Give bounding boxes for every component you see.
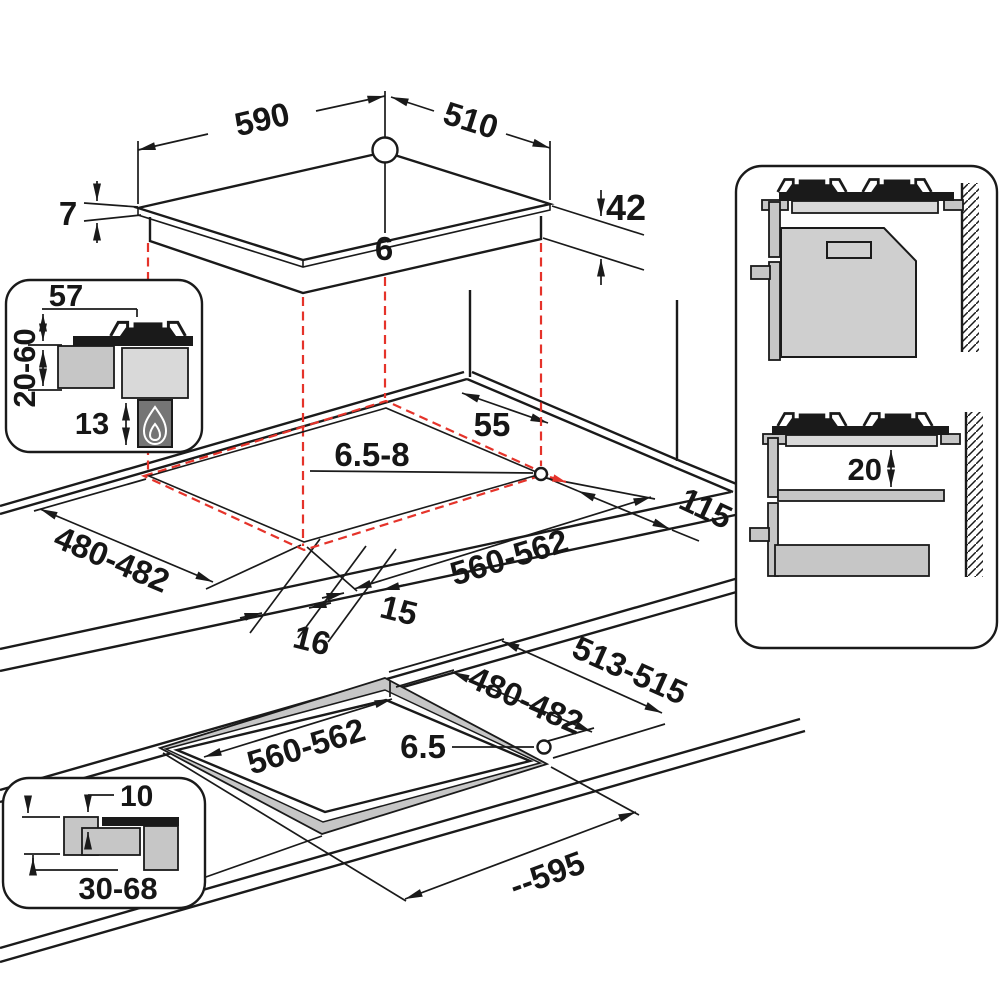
worktop-section <box>58 346 114 388</box>
dim-55-label: 55 <box>474 406 511 443</box>
dim-cutout-depth-label: 480-482 <box>49 518 175 599</box>
gas-inlet-tab <box>750 528 769 541</box>
wall-hatch-top <box>963 183 979 352</box>
dim-30-68-label: 30-68 <box>78 871 157 906</box>
dim-overall-width-label: --595 <box>504 843 589 904</box>
dim-15-label: 15 <box>377 588 422 633</box>
dim-20-60-label: 20-60 <box>7 328 42 407</box>
dim-flush-hole-label: 6.5 <box>400 728 446 765</box>
diagram-page: 55 6.5-8 115 480-482 560-562 15 16 <box>0 0 1000 1000</box>
dim-13-label: 13 <box>75 406 109 441</box>
dim-20-label: 20 <box>848 452 882 487</box>
dim-7-label: 7 <box>59 195 77 232</box>
dim-57-label: 57 <box>49 278 83 313</box>
flush-corner-hole <box>538 741 551 754</box>
oven-vent <box>827 242 871 258</box>
gas-inlet-tab <box>751 266 770 279</box>
cutout-corner-hole <box>535 468 547 480</box>
projection-lines <box>144 243 566 550</box>
hob-glass-top <box>138 152 550 260</box>
worktop-step-lower <box>82 828 140 855</box>
hob-reference-hole <box>373 138 398 163</box>
shelf <box>778 490 944 501</box>
dim-16-label: 16 <box>290 618 335 663</box>
dim-510-label: 510 <box>439 94 503 146</box>
hob-glass-section <box>102 817 179 826</box>
hob-body-section <box>144 826 178 870</box>
hob-installation-diagram: 55 6.5-8 115 480-482 560-562 15 16 <box>0 0 1000 1000</box>
dim-115-label: 115 <box>674 480 738 536</box>
drawer <box>775 545 929 576</box>
wall-hatch-bottom <box>967 412 983 577</box>
dim-590-label: 590 <box>231 95 293 143</box>
thickness-detail-inset: 57 20-60 13 <box>6 278 202 452</box>
dim-cutout-width-label: 560-562 <box>446 522 573 593</box>
side-clearance-panel: 20 <box>736 166 997 648</box>
dim-42-label: 42 <box>606 187 646 228</box>
dim-hole-diameter-label: 6.5-8 <box>334 436 409 473</box>
dim-10-label: 10 <box>120 780 153 813</box>
hob-glass-section <box>73 336 193 346</box>
dim-6-label: 6 <box>375 230 393 267</box>
hob-body-section <box>122 348 188 398</box>
